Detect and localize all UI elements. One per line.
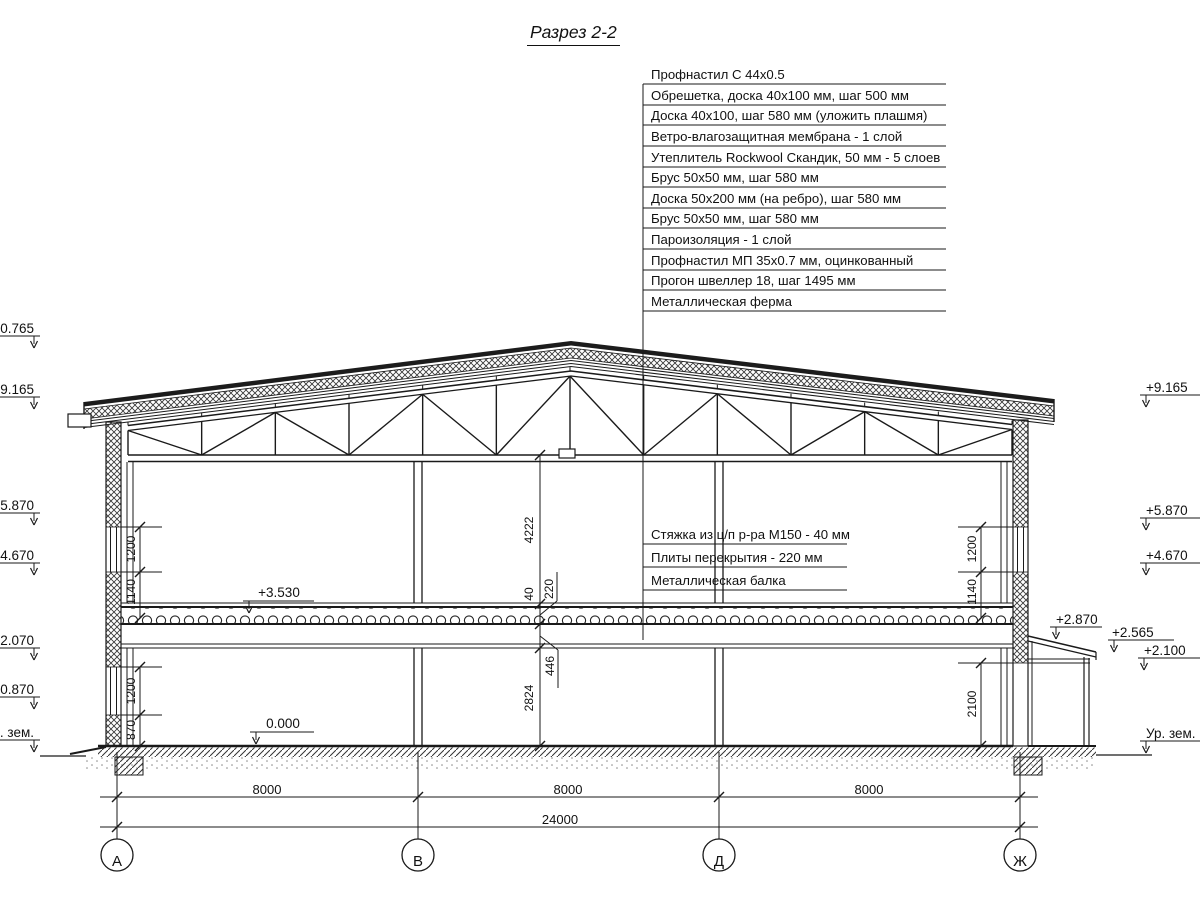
eave-gutter-detail bbox=[68, 414, 91, 427]
dim-label: 1200 bbox=[124, 526, 138, 572]
foundation-right bbox=[1014, 757, 1042, 775]
floor-callout-label: Металлическая балка bbox=[651, 573, 786, 589]
elevation-mark: Ур. зем. bbox=[0, 725, 34, 741]
dim-label: 1140 bbox=[124, 569, 138, 615]
dim-label: 1140 bbox=[965, 569, 979, 615]
axis-label: Д bbox=[703, 846, 735, 878]
elevation-mark: +5.870 bbox=[0, 498, 34, 514]
elevation-mark: +0.870 bbox=[0, 682, 34, 698]
drawing-canvas: Разрез 2-2 Профнастил С 44х0.5 Обрешетка… bbox=[0, 0, 1200, 900]
elevation-mark: Ур. зем. bbox=[1146, 726, 1196, 742]
dim-label: 870 bbox=[124, 707, 138, 753]
roof-callout-label: Брус 50х50 мм, шаг 580 мм bbox=[651, 170, 819, 186]
elevation-mark: +10.765 bbox=[0, 321, 34, 337]
dim-label: 4222 bbox=[522, 507, 536, 553]
elevation-mark: +9.165 bbox=[0, 382, 34, 398]
roof-callout-label: Утеплитель Rockwool Скандик, 50 мм - 5 с… bbox=[651, 150, 940, 166]
right-wall bbox=[1001, 420, 1028, 746]
elevation-mark: +4.670 bbox=[1146, 548, 1188, 564]
section-linework bbox=[0, 0, 1200, 900]
dim-label: 2824 bbox=[522, 675, 536, 721]
elevation-mark: +5.870 bbox=[1146, 503, 1188, 519]
floor-callout-label: Плиты перекрытия - 220 мм bbox=[651, 550, 823, 566]
roof-callout-label: Брус 50х50 мм, шаг 580 мм bbox=[651, 211, 819, 227]
elevation-mark: +2.100 bbox=[1144, 643, 1186, 659]
dim-label: 8000 bbox=[227, 782, 307, 797]
roof-callout-label: Ветро-влагозащитная мембрана - 1 слой bbox=[651, 129, 902, 145]
floor-callout-label: Стяжка из ц/п р-ра М150 - 40 мм bbox=[651, 527, 850, 543]
elevation-mark: +4.670 bbox=[0, 548, 34, 564]
dim-label: 24000 bbox=[520, 812, 600, 827]
dim-label: 40 bbox=[522, 571, 536, 617]
axis-label: Ж bbox=[1004, 846, 1036, 878]
dim-label: 8000 bbox=[829, 782, 909, 797]
roof-callout-label: Профнастил С 44х0.5 bbox=[651, 67, 785, 83]
dim-label: 8000 bbox=[528, 782, 608, 797]
floor-slab bbox=[121, 603, 1013, 648]
foundation-left bbox=[115, 757, 143, 775]
roof-callout-label: Обрешетка, доска 40х100 мм, шаг 500 мм bbox=[651, 88, 909, 104]
elevation-mark: +9.165 bbox=[1146, 380, 1188, 396]
roof-callout-label: Доска 50х200 мм (на ребро), шаг 580 мм bbox=[651, 191, 901, 207]
ground-floor bbox=[40, 746, 1152, 775]
dim-label: 220 bbox=[542, 566, 556, 612]
roof-callout-label: Доска 40х100, шаг 580 мм (уложить плашмя… bbox=[651, 108, 927, 124]
roof-callout-label: Прогон швеллер 18, шаг 1495 мм bbox=[651, 273, 856, 289]
roof-callout-label: Профнастил МП 35х0.7 мм, оцинкованный bbox=[651, 253, 913, 269]
elevation-mark: +2.070 bbox=[0, 633, 34, 649]
drawing-title: Разрез 2-2 bbox=[527, 22, 620, 46]
elevation-mark: +2.565 bbox=[1112, 625, 1154, 641]
roof-callout-label: Пароизоляция - 1 слой bbox=[651, 232, 792, 248]
dim-label: 2100 bbox=[965, 681, 979, 727]
truss-plate-detail bbox=[559, 449, 575, 458]
dim-label: 446 bbox=[543, 643, 557, 689]
axis-label: В bbox=[402, 846, 434, 878]
dim-label: 1200 bbox=[965, 526, 979, 572]
elevation-mark: +2.870 bbox=[1056, 612, 1098, 628]
interior-columns bbox=[414, 462, 723, 746]
roof-callout-label: Металлическая ферма bbox=[651, 294, 792, 310]
elevation-mark: +3.530 bbox=[243, 585, 315, 601]
axis-label: А bbox=[101, 846, 133, 878]
elevation-mark: 0.000 bbox=[250, 716, 316, 732]
annex bbox=[1028, 636, 1096, 746]
